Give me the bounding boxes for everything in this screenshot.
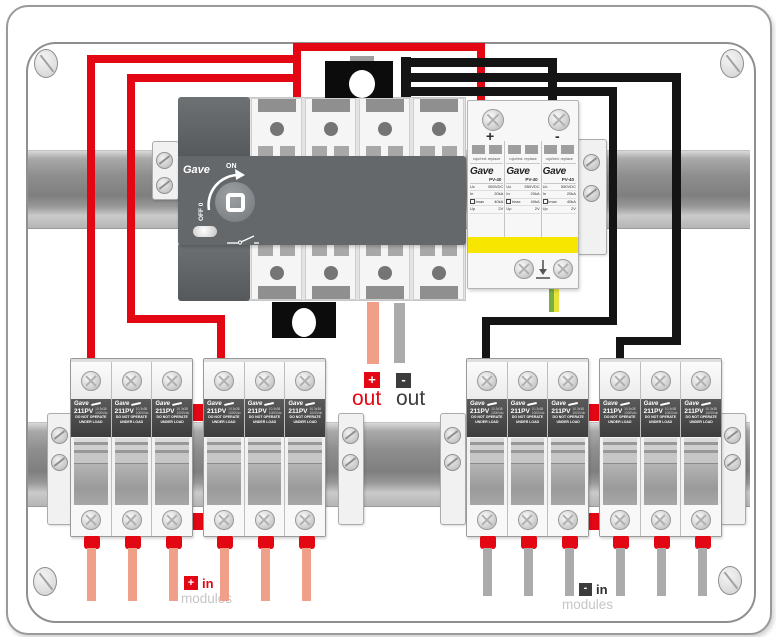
in-minus-badge: - [579,583,592,596]
screw-icon [122,371,142,391]
screw-icon [651,510,671,530]
switch-terminal [359,98,410,158]
positive-wire-segment [127,74,135,323]
fuse-label: Gave 211PV 10.3x381000Vdc DO NOT OPERATE… [245,399,285,437]
logo-swoosh-icon [620,402,630,406]
spd-brand: Gave [470,166,503,177]
fuse-holder: Gave 211PV 10.3x381000Vdc DO NOT OPERATE… [600,362,641,536]
ground-symbol-icon [534,259,552,281]
positive-wire-segment [127,315,225,323]
fuse-model: 211PV [248,408,267,415]
fuse-label: Gave 211PV 10.3x381000Vdc DO NOT OPERATE… [467,399,507,437]
fuse-carrier-handle[interactable] [115,463,149,505]
fuse-carrier-handle[interactable] [74,463,108,505]
spd-side-bracket [577,139,607,255]
fuse-carrier-handle[interactable] [684,463,718,505]
fuse-carrier-vents [470,438,504,463]
bus-jumper [193,513,203,530]
spd-flag-window [472,145,485,154]
fuse-warning: UNDER LOAD [113,420,151,425]
in-minus-modules-label: modules [562,597,613,612]
negative-wire-segment [609,87,617,325]
logo-swoosh-icon [568,402,578,406]
screw-icon [444,454,461,471]
module-string-wire [87,548,96,601]
screw-icon [444,427,461,444]
fuse-holder: Gave 211PV 10.3x381000Vdc DO NOT OPERATE… [508,362,549,536]
switch-indicator [193,226,217,237]
module-string-wire [220,548,229,601]
screw-icon [691,510,711,530]
negative-wire-segment [401,58,557,67]
spd-module: rojo/red: replace Gave PV-40 Uc550VDC In… [505,141,541,237]
spd-brand: Gave [543,166,576,177]
fuse-brand: Gave [248,401,263,407]
screw-icon [477,371,497,391]
fuse-brand: Gave [155,401,170,407]
fuse-brand: Gave [551,401,566,407]
fuse-label: Gave 211PV 10.3x381000Vdc DO NOT OPERATE… [600,399,640,437]
fuse-warning: UNDER LOAD [468,420,506,425]
fuse-brand: Gave [288,401,303,407]
fuse-model: 211PV [207,408,226,415]
spd-flag-window [544,145,557,154]
screw-icon [553,259,573,279]
spd-module: rojo/red: replace Gave PV-40 Uc550VDC In… [469,141,505,237]
logo-swoosh-icon [701,402,711,406]
fuse-label: Gave 211PV 10.3x381000Vdc DO NOT OPERATE… [112,399,152,437]
fuse-warning: UNDER LOAD [205,420,243,425]
corner-screw-icon [34,49,58,78]
fuse-holder: Gave 211PV 10.3x381000Vdc DO NOT OPERATE… [204,362,245,536]
rail-end-clamp [720,413,746,525]
screw-icon [214,510,234,530]
fuse-group: Gave 211PV 10.3x381000Vdc DO NOT OPERATE… [466,358,589,537]
fuse-brand: Gave [115,401,130,407]
logo-swoosh-icon [224,402,234,406]
spd-flag-window [525,145,538,154]
logo-swoosh-icon [487,402,497,406]
negative-wire-segment [482,317,490,362]
fuse-brand: Gave [511,401,526,407]
fuse-model: 211PV [684,408,703,415]
screw-icon [477,510,497,530]
module-string-wire [261,548,270,601]
fuse-carrier-vents [684,438,718,463]
positive-wire-segment [293,43,301,98]
module-string-wire [657,548,666,596]
fuse-label: Gave 211PV 10.3x381000Vdc DO NOT OPERATE… [508,399,548,437]
screw-icon [514,259,534,279]
bus-jumper [589,513,599,530]
spd-replace-note: rojo/red: replace [543,157,576,164]
corner-screw-icon [720,49,744,78]
screw-icon [255,510,275,530]
fuse-model: 211PV [115,408,134,415]
fuse-brand: Gave [603,401,618,407]
in-plus-label: in [202,576,214,591]
screw-icon [156,177,173,194]
screw-icon [156,152,173,169]
screw-icon [610,371,630,391]
fuse-brand: Gave [684,401,699,407]
fuse-warning: UNDER LOAD [509,420,547,425]
screw-icon [610,510,630,530]
logo-swoosh-icon [527,402,537,406]
positive-wire-segment [293,43,485,51]
positive-wire-segment [87,55,301,63]
rail-end-clamp [440,413,466,525]
switch-terminal [305,244,356,300]
fuse-carrier-handle[interactable] [288,463,322,505]
fuse-warning: UNDER LOAD [682,420,720,425]
fuse-warning: UNDER LOAD [72,420,110,425]
fuse-warning: UNDER LOAD [549,420,587,425]
screw-icon [295,371,315,391]
screw-icon [81,371,101,391]
spd-flag-window [561,145,574,154]
fuse-carrier-vents [288,438,322,463]
screw-icon [724,454,741,471]
fuse-label: Gave 211PV 10.3x381000Vdc DO NOT OPERATE… [152,399,192,437]
fuse-carrier-vents [207,438,241,463]
fuse-carrier-handle[interactable] [207,463,241,505]
positive-out-wire [367,302,379,364]
fuse-carrier-vents [551,438,585,463]
fuse-label: Gave 211PV 10.3x381000Vdc DO NOT OPERATE… [204,399,244,437]
screw-icon [81,510,101,530]
switch-terminal [359,244,410,300]
corner-screw-icon [33,567,57,596]
logo-swoosh-icon [660,402,670,406]
switch-end-block [178,97,250,159]
fuse-model: 211PV [288,408,307,415]
switch-terminal [251,98,302,158]
fuse-carrier-vents [74,438,108,463]
module-string-wire [524,548,533,596]
logo-swoosh-icon [264,402,274,406]
bus-jumper [193,404,203,421]
fuse-holder: Gave 211PV 10.3x381000Vdc DO NOT OPERATE… [152,362,192,536]
rail-end-clamp [152,141,179,200]
fuse-warning: UNDER LOAD [246,420,284,425]
combiner-box-diagram: Gave ON OFF 0 + - rojo/red: replace Gave [0,0,776,637]
fuse-label: Gave 211PV 10.3x381000Vdc DO NOT OPERATE… [71,399,111,437]
fuse-carrier-handle[interactable] [644,463,678,505]
fuse-model: 211PV [551,408,570,415]
fuse-brand: Gave [74,401,89,407]
spd-model: PV-40 [543,177,576,184]
screw-icon [518,510,538,530]
screw-icon [518,371,538,391]
negative-wire-segment [401,87,617,96]
fuse-carrier-vents [511,438,545,463]
screw-icon [342,427,359,444]
fuse-warning: UNDER LOAD [642,420,680,425]
fuse-holder: Gave 211PV 10.3x381000Vdc DO NOT OPERATE… [285,362,325,536]
module-string-wire [128,548,137,601]
module-string-wire [483,548,492,596]
fuse-label: Gave 211PV 10.3x381000Vdc DO NOT OPERATE… [548,399,588,437]
fuse-brand: Gave [470,401,485,407]
switch-terminal [413,98,464,158]
spd-brand: Gave [506,166,539,177]
surge-protector: + - rojo/red: replace Gave PV-40 Uc550VD… [467,100,579,289]
logo-swoosh-icon [172,402,182,406]
disconnect-symbol-icon [226,233,260,246]
fuse-carrier-vents [248,438,282,463]
switch-terminal [251,244,302,300]
screw-icon [122,510,142,530]
out-minus-badge: - [396,373,411,388]
module-string-wire [698,548,707,596]
positive-wire-segment [217,315,225,362]
fuse-holder: Gave 211PV 10.3x381000Vdc DO NOT OPERATE… [548,362,588,536]
fuse-holder: Gave 211PV 10.3x381000Vdc DO NOT OPERATE… [681,362,721,536]
spd-flag-window [489,145,502,154]
spd-model: PV-40 [506,177,539,184]
screw-icon [691,371,711,391]
cable-entry-hole [349,70,375,98]
screw-icon [583,185,600,202]
fuse-holder: Gave 211PV 10.3x381000Vdc DO NOT OPERATE… [71,362,112,536]
screw-icon [583,154,600,171]
logo-swoosh-icon [91,402,101,406]
spd-flag-window [508,145,521,154]
spd-module: rojo/red: replace Gave PV-40 Uc550VDC In… [542,141,577,237]
screw-icon [558,371,578,391]
module-string-wire [616,548,625,596]
fuse-warning: UNDER LOAD [286,420,324,425]
fuse-carrier-vents [155,438,189,463]
fuse-model: 211PV [470,408,489,415]
switch-end-block [178,243,250,301]
logo-swoosh-icon [305,402,315,406]
module-string-wire [565,548,574,596]
fuse-model: 211PV [74,408,93,415]
fuse-label: Gave 211PV 10.3x381000Vdc DO NOT OPERATE… [285,399,325,437]
module-string-wire [302,548,311,601]
fuse-brand: Gave [644,401,659,407]
fuse-group: Gave 211PV 10.3x381000Vdc DO NOT OPERATE… [70,358,193,537]
screw-icon [214,371,234,391]
fuse-carrier-vents [603,438,637,463]
in-minus-label: in [596,582,608,597]
fuse-carrier-vents [644,438,678,463]
fuse-carrier-handle[interactable] [248,463,282,505]
logo-swoosh-icon [131,402,141,406]
screw-icon [651,371,671,391]
fuse-model: 211PV [155,408,174,415]
fuse-model: 211PV [603,408,622,415]
module-string-wire [169,548,178,601]
rail-end-clamp [338,413,364,525]
negative-wire-segment [616,337,681,345]
out-plus-badge: + [364,372,380,388]
spd-status-stripe [468,237,578,253]
screw-icon [51,427,68,444]
fuse-label: Gave 211PV 10.3x381000Vdc DO NOT OPERATE… [681,399,721,437]
screw-icon [51,454,68,471]
cable-entry-hole [292,308,316,337]
out-minus-label: out [396,387,425,411]
screw-icon [558,510,578,530]
fuse-carrier-handle[interactable] [511,463,545,505]
fuse-holder: Gave 211PV 10.3x381000Vdc DO NOT OPERATE… [112,362,153,536]
positive-wire-segment [87,55,95,362]
fuse-holder: Gave 211PV 10.3x381000Vdc DO NOT OPERATE… [467,362,508,536]
fuse-brand: Gave [207,401,222,407]
spd-model: PV-40 [470,177,503,184]
fuse-carrier-handle[interactable] [551,463,585,505]
fuse-holder: Gave 211PV 10.3x381000Vdc DO NOT OPERATE… [245,362,286,536]
corner-screw-icon [718,566,742,595]
in-plus-badge: + [184,576,198,590]
fuse-carrier-handle[interactable] [603,463,637,505]
out-plus-label: out [352,387,381,411]
screw-icon [162,371,182,391]
negative-wire-segment [482,317,617,325]
spd-replace-note: rojo/red: replace [506,157,539,164]
spd-replace-note: rojo/red: replace [470,157,503,164]
fuse-model: 211PV [644,408,663,415]
fuse-carrier-handle[interactable] [155,463,189,505]
fuse-model: 211PV [511,408,530,415]
screw-icon [255,371,275,391]
rotary-handle-square[interactable] [226,193,245,212]
screw-icon [295,510,315,530]
switch-terminal [413,244,464,300]
fuse-holder: Gave 211PV 10.3x381000Vdc DO NOT OPERATE… [641,362,682,536]
fuse-carrier-handle[interactable] [470,463,504,505]
fuse-group: Gave 211PV 10.3x381000Vdc DO NOT OPERATE… [203,358,326,537]
negative-out-wire [394,303,405,363]
spd-modules: rojo/red: replace Gave PV-40 Uc550VDC In… [469,141,577,237]
screw-icon [342,454,359,471]
fuse-carrier-vents [115,438,149,463]
fuse-group: Gave 211PV 10.3x381000Vdc DO NOT OPERATE… [599,358,722,537]
fuse-warning: UNDER LOAD [601,420,639,425]
fuse-label: Gave 211PV 10.3x381000Vdc DO NOT OPERATE… [641,399,681,437]
positive-wire-segment [127,74,301,82]
screw-icon [162,510,182,530]
bus-jumper [589,404,599,421]
switch-terminal [305,98,356,158]
fuse-warning: UNDER LOAD [153,420,191,425]
screw-icon [724,427,741,444]
negative-wire-segment [401,73,681,82]
negative-wire-segment [672,73,681,345]
